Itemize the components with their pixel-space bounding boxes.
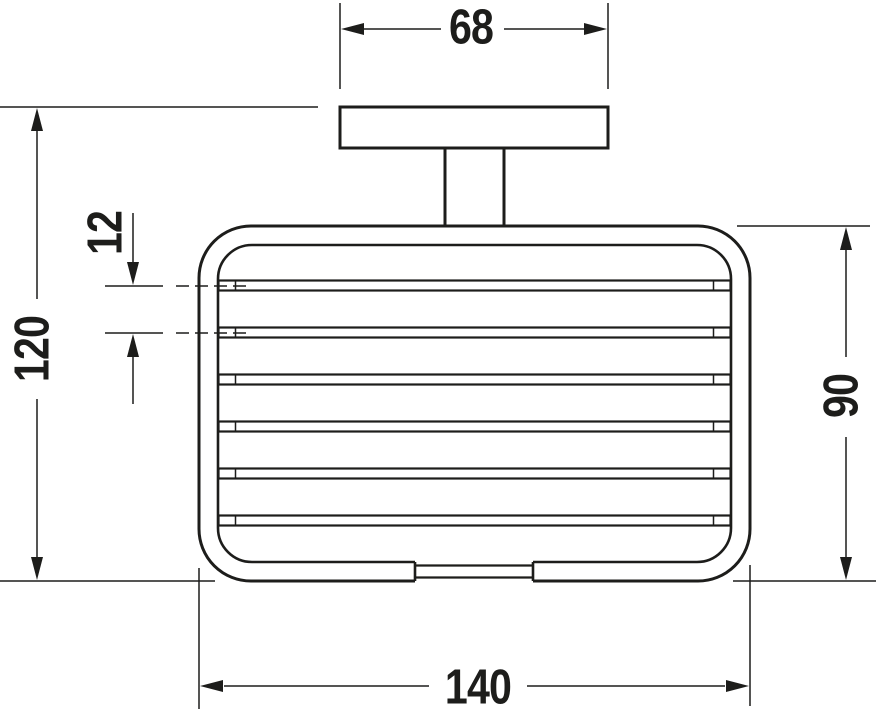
arrow-down-icon: [31, 557, 43, 580]
dimension-label-basket-width: 140: [445, 664, 511, 713]
basket-wire: [219, 281, 731, 291]
basket-outer-frame: [199, 226, 750, 581]
basket-wire: [219, 422, 731, 432]
technical-drawing-canvas: 68 120 12 90 140: [0, 0, 876, 717]
arrow-up-icon: [840, 227, 852, 250]
arrow-left-icon: [341, 23, 364, 35]
arrow-up-icon: [31, 108, 43, 131]
arrow-down-icon: [127, 262, 139, 285]
wall-plate: [340, 107, 608, 148]
arrow-left-icon: [200, 680, 223, 692]
arrow-right-icon: [726, 680, 749, 692]
mounting-stem: [445, 148, 504, 225]
basket-wire: [219, 328, 731, 338]
arrow-right-icon: [584, 23, 607, 35]
drawing-svg: [0, 0, 876, 717]
arrowheads-12: [127, 262, 139, 357]
drawing-root: [0, 3, 876, 709]
product-outline: [199, 107, 750, 581]
arrow-down-icon: [840, 557, 852, 580]
arrow-up-icon: [127, 334, 139, 357]
basket-bottom-rail: [415, 566, 533, 578]
dimension-label-wire-spacing: 12: [82, 211, 131, 255]
basket-wire: [219, 469, 731, 479]
wire-end-ticks: [236, 281, 714, 526]
dimension-label-overall-height: 120: [9, 316, 58, 382]
dimension-label-basket-height: 90: [818, 374, 867, 418]
basket-wire: [219, 375, 731, 385]
dimension-label-plate-width: 68: [449, 4, 493, 53]
basket-wire: [219, 516, 731, 526]
